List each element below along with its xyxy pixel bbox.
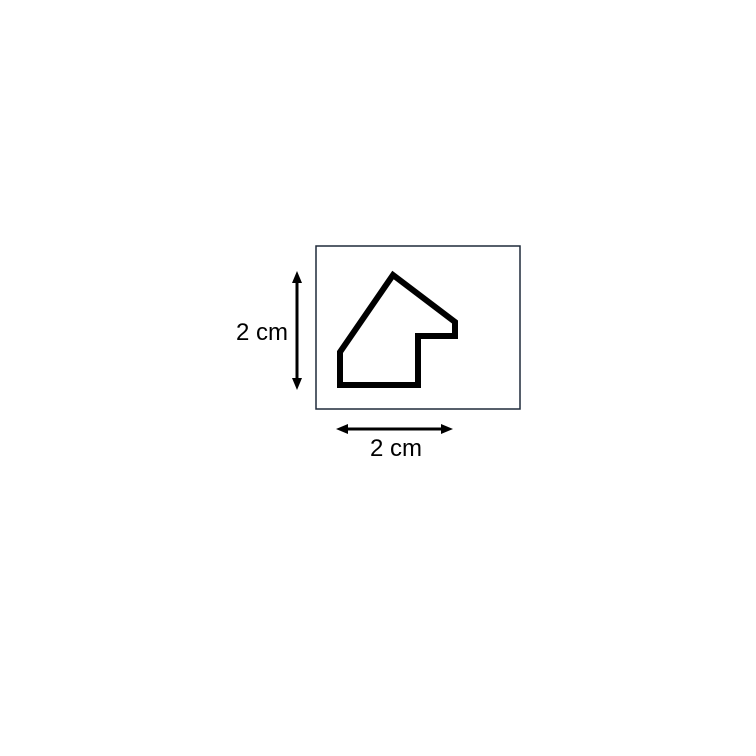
vertical-dimension-arrow <box>292 271 302 390</box>
width-dimension-label: 2 cm <box>370 435 422 462</box>
height-dimension-label: 2 cm <box>236 319 288 346</box>
polygon-shape <box>340 275 455 385</box>
arrowhead-left-icon <box>336 424 348 434</box>
diagram-canvas: 2 cm 2 cm <box>0 0 756 756</box>
arrowhead-right-icon <box>441 424 453 434</box>
diagram: 2 cm 2 cm <box>0 0 756 756</box>
horizontal-dimension-arrow <box>336 424 453 434</box>
arrowhead-down-icon <box>292 378 302 390</box>
arrowhead-up-icon <box>292 271 302 283</box>
